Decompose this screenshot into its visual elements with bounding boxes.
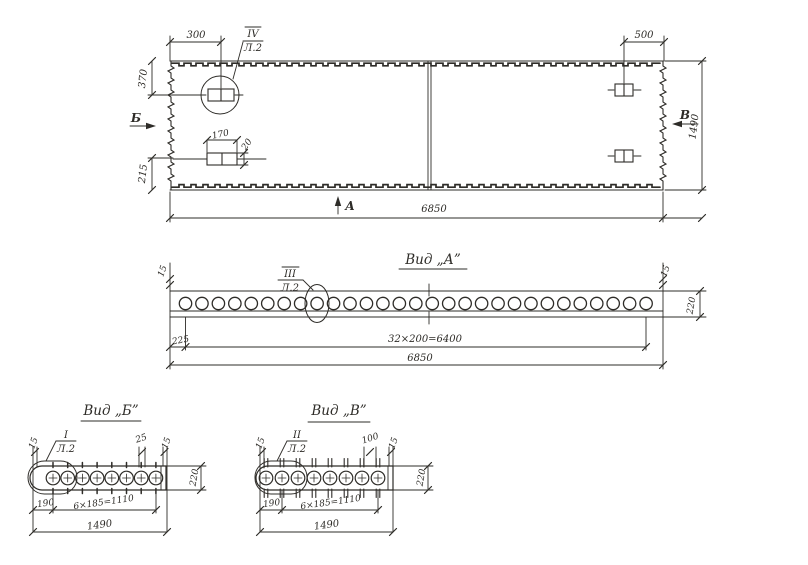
- view-a-title: Вид „А”: [404, 252, 461, 268]
- dim-300: 300: [186, 30, 206, 41]
- section-a-label: А: [344, 199, 355, 213]
- view-b-dim-25: 25: [133, 432, 148, 445]
- detail-iii-number: III: [283, 269, 297, 280]
- view-v-dim-15-right: 15: [387, 436, 400, 450]
- view-v-dim-spacing: 6×185=1110: [300, 494, 362, 512]
- view-a-dim-15-right: 15: [659, 264, 672, 278]
- view-b-dim-190: 190: [37, 498, 56, 510]
- dim-500: 500: [634, 30, 654, 41]
- detail-ii-number: II: [292, 430, 302, 441]
- view-v-lines: [260, 422, 433, 532]
- view-v-title: Вид „В”: [310, 403, 366, 419]
- view-b: Вид „Б” I Л.2 15 25 15 220 190 6×185=111…: [27, 403, 206, 536]
- detail-i-number: I: [63, 430, 69, 441]
- slab-drawing: 300 500 370 215 170 20 1490 6850 Б В А I…: [0, 0, 808, 565]
- view-b-ticks: [30, 449, 205, 536]
- view-v: Вид „В” II Л.2 15 100 15 220 190 6×185=1…: [254, 403, 433, 536]
- left-break-edge: [168, 61, 174, 190]
- view-b-title: Вид „Б”: [82, 403, 138, 419]
- dim-20: 20: [239, 137, 254, 153]
- embedded-plate-right-upper: [615, 84, 633, 96]
- dim-370: 370: [137, 68, 150, 89]
- view-v-dim-190: 190: [263, 498, 282, 510]
- view-a-lines: [170, 263, 706, 369]
- view-a: Вид „А” III Л.2 15 15 220 225 32×200=640…: [156, 252, 706, 369]
- detail-circle-iv: [201, 76, 239, 114]
- detail-i-sheet: Л.2: [56, 444, 75, 455]
- detail-iii-sheet: Л.2: [280, 283, 299, 294]
- view-a-dim-spacing: 32×200=6400: [388, 334, 463, 345]
- detail-iv-sheet: Л.2: [243, 43, 262, 54]
- view-b-dim-spacing: 6×185=1110: [73, 494, 135, 512]
- view-a-dim-total: 6850: [407, 353, 433, 364]
- embedded-plate-right-lower: [615, 150, 633, 162]
- view-a-dim-15-left: 15: [156, 264, 169, 278]
- top-edge-corrugation: [172, 63, 660, 66]
- dim-215: 215: [137, 164, 150, 185]
- view-v-dim-100: 100: [361, 432, 381, 447]
- plan-dimension-lines: [130, 27, 706, 222]
- section-b-arrowhead: [146, 123, 156, 129]
- view-a-holes: [179, 297, 652, 309]
- embedded-plate-lower-left: [207, 153, 237, 165]
- view-v-dim-220: 220: [415, 468, 428, 488]
- section-a-arrowhead: [335, 196, 341, 206]
- section-v-label: В: [679, 108, 690, 122]
- view-v-strip-outline: [256, 466, 393, 490]
- view-a-ticks: [167, 276, 704, 369]
- embedded-plate-top-left: [201, 76, 239, 114]
- detail-ii-sheet: Л.2: [287, 444, 306, 455]
- view-v-holes: [259, 459, 385, 498]
- plan-view: 300 500 370 215 170 20 1490 6850 Б В А I…: [130, 27, 706, 222]
- section-b-label: Б: [130, 111, 141, 125]
- technical-drawing-sheet: 300 500 370 215 170 20 1490 6850 Б В А I…: [0, 0, 808, 565]
- view-v-dim-total: 1490: [313, 518, 340, 533]
- view-b-dim-total: 1490: [86, 518, 113, 533]
- detail-iv-number: IV: [246, 29, 260, 40]
- dim-6850: 6850: [421, 204, 447, 215]
- view-a-dim-220: 220: [685, 296, 698, 316]
- bottom-edge-corrugation: [172, 185, 660, 188]
- right-break-edge: [660, 61, 666, 190]
- view-b-dim-220: 220: [188, 468, 201, 488]
- view-b-dim-15-right: 15: [160, 436, 173, 450]
